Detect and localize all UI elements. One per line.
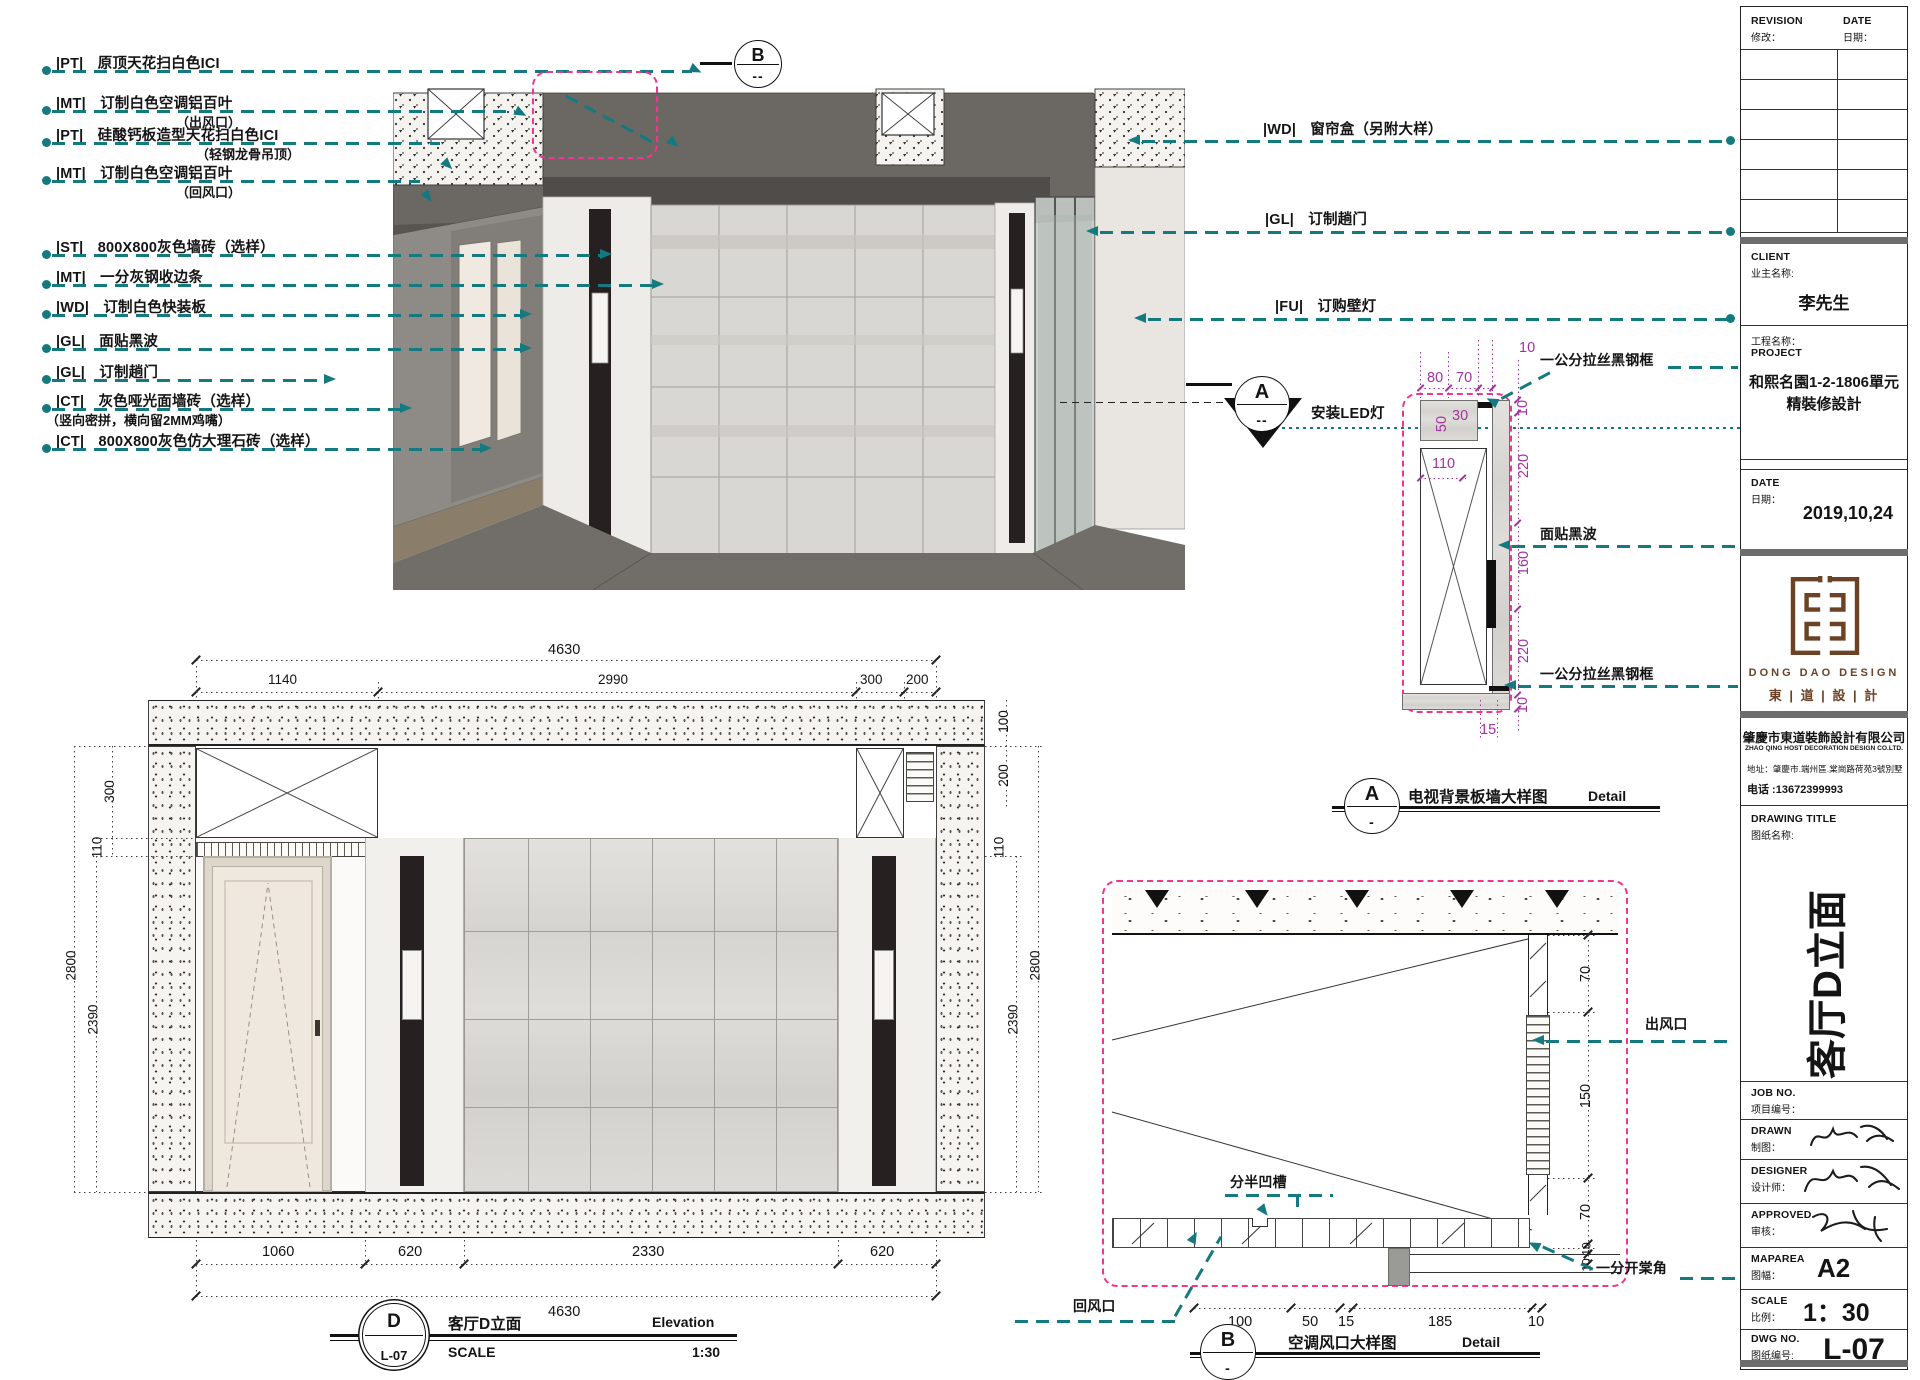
company-name: 肇慶市東道裝飾設計有限公司: [1741, 727, 1907, 746]
dim-label: 4630: [548, 1304, 580, 1320]
elevation-left-column: [148, 746, 196, 1192]
leader-dot: [42, 106, 51, 115]
elevation-type: Elevation: [652, 1314, 714, 1330]
detail-a-black-glass: [1487, 560, 1496, 628]
date-value: 2019,10,24: [1741, 503, 1893, 524]
leader-dot: [42, 310, 51, 319]
label-outlet: 出风口: [1645, 1014, 1688, 1034]
scale-value: 1：30: [1803, 1293, 1870, 1329]
dim-ext: [365, 1240, 366, 1264]
section-marker-a: A --: [1234, 376, 1290, 432]
dim-ext: [1497, 700, 1498, 738]
table-line: [1741, 1329, 1907, 1330]
dim-label: 300: [860, 672, 883, 687]
drawing-title-label-en: DRAWING TITLE: [1751, 813, 1836, 825]
hatch-marks: [1112, 1218, 1530, 1248]
dim-ext: [196, 1240, 197, 1296]
leader-arrow-icon: [1128, 135, 1140, 145]
leader-dot: [42, 444, 51, 453]
dim-ext: [1548, 1248, 1596, 1249]
table-line: [1741, 199, 1907, 200]
dim-label: 2800: [1028, 950, 1043, 980]
callout-fu-wall-lamp: |FU| 订购壁灯: [1275, 295, 1376, 316]
perspective-svg: [393, 85, 1185, 590]
job-label-en: JOB NO.: [1751, 1087, 1796, 1099]
leader-dot: [42, 176, 51, 185]
project-label-zh: 工程名称：: [1751, 333, 1801, 348]
dim-label: 30: [1452, 408, 1468, 424]
dim-ext: [196, 666, 197, 700]
drawing-title-vertical: 客厅D立面: [1795, 913, 1853, 1079]
dim-line: [1420, 388, 1494, 389]
dim-label: 80: [1427, 370, 1443, 386]
leader-line: [1296, 1196, 1299, 1212]
dim-line: [196, 660, 936, 661]
leader-arrow-icon: [1134, 313, 1146, 323]
company-address: 地址：肇慶市.端州區.棠崗路荷苑3號別墅: [1747, 763, 1903, 775]
logo-text-en: DONG DAO DESIGN: [1741, 667, 1907, 679]
elevation-scale-value: 1:30: [692, 1344, 720, 1360]
detail-a-wall-strip: [1492, 400, 1510, 708]
project-label-en: PROJECT: [1751, 347, 1802, 359]
tile-joint: [465, 1019, 837, 1020]
leader-line: [1512, 545, 1738, 548]
scale-label-en: SCALE: [1751, 1295, 1788, 1307]
dongdao-logo-icon: [1785, 573, 1865, 659]
table-line: [1741, 325, 1907, 326]
dim-label: 185: [1428, 1314, 1452, 1330]
dim-ext: [936, 1240, 937, 1296]
dim-ext: [904, 682, 905, 700]
dim-ext: [74, 746, 148, 747]
dim-label: 200: [906, 672, 929, 687]
table-line: [1741, 232, 1907, 233]
approved-signature: [1803, 1203, 1903, 1249]
revision-date-en: DATE: [1843, 15, 1872, 27]
elevation-ceiling-slab: [148, 700, 985, 746]
label-groove: 分半凹槽: [1230, 1172, 1287, 1192]
table-line: [1741, 1081, 1907, 1082]
detail-b-scope-box: [532, 71, 658, 159]
elevation-side-grille: [906, 752, 934, 802]
dim-label: 70: [1456, 370, 1472, 386]
table-line: [1741, 169, 1907, 170]
elevation-left-glass-strip: [400, 856, 424, 1186]
leader-line: [1546, 1040, 1734, 1043]
perspective-rendering: [393, 85, 1185, 590]
leader-dot: [1726, 227, 1735, 236]
elevation-curtain-box: [196, 748, 378, 838]
hatch-marks: [1528, 1175, 1548, 1220]
leader-line: [52, 110, 515, 113]
project-name-line2: 精裝修設計: [1741, 393, 1907, 414]
elevation-return-grille: [196, 842, 378, 857]
dim-line: [196, 1264, 936, 1265]
company-name-en: ZHAO QING HOST DECORATION DESIGN CO.LTD.: [1741, 745, 1907, 752]
divider-bar: [1740, 549, 1908, 556]
label-return-air: 回风口: [1073, 1296, 1116, 1316]
leader-line: [1225, 1194, 1333, 1197]
dim-label: 150: [1578, 1084, 1594, 1108]
label-black-glass: 面贴黑波: [1540, 524, 1597, 544]
leader-arrow-icon: [1086, 226, 1098, 236]
dim-label: 200: [996, 764, 1011, 787]
dim-label: 220: [1516, 639, 1532, 663]
maparea-value: A2: [1817, 1253, 1850, 1284]
divider-bar: [1740, 1360, 1908, 1367]
company-phone: 电话 :13672399993: [1747, 781, 1843, 797]
dim-label: 10: [1515, 400, 1531, 416]
leader-dot: [42, 66, 51, 75]
dim-line: [1194, 1308, 1542, 1309]
table-line: [1741, 109, 1907, 110]
dim-label: 2330: [632, 1244, 664, 1260]
dim-label: 10: [1515, 697, 1531, 713]
dim-label: 70: [1578, 1204, 1594, 1220]
detail-b-bubble: B -: [1200, 1324, 1256, 1380]
elevation-floor-slab: [148, 1192, 985, 1238]
leader-line: [1015, 1320, 1175, 1323]
table-line: [1741, 139, 1907, 140]
leader-line: [1148, 318, 1730, 321]
scale-label-zh: 比例：: [1751, 1309, 1781, 1324]
elevation-door-leaf: [212, 866, 323, 1192]
dim-ext: [936, 666, 937, 700]
callout-led-strip: 安装LED灯: [1311, 402, 1385, 423]
detail-a-title: 电视背景板墙大样图: [1408, 785, 1548, 807]
leader-dot: [42, 138, 51, 147]
drawing-title-label-zh: 图纸名称:: [1751, 827, 1794, 842]
dim-label: 110: [1432, 456, 1455, 472]
leader-line: [1501, 371, 1552, 400]
leader-arrow-icon: [324, 374, 336, 384]
dim-ext: [96, 856, 196, 857]
dim-label: 2390: [86, 1004, 101, 1034]
client-label-en: CLIENT: [1751, 251, 1790, 263]
leader-dot: [42, 250, 51, 259]
section-cut-line: [1186, 383, 1232, 386]
detail-a-bubble: A -: [1344, 778, 1400, 834]
section-cut-dashline: [1060, 402, 1230, 403]
dwg-label-en: DWG NO.: [1751, 1333, 1800, 1345]
section-cut-line: [700, 62, 732, 65]
table-line: [1741, 469, 1907, 470]
dim-ext: [96, 838, 196, 839]
dim-label: 620: [398, 1244, 422, 1260]
dim-ext: [464, 1240, 465, 1264]
dim-ext: [985, 1192, 1043, 1193]
client-name: 李先生: [1741, 289, 1907, 314]
dim-label: 15: [1338, 1314, 1354, 1330]
dim-label: 50: [1434, 416, 1450, 432]
tile-joint: [465, 931, 837, 932]
revision-label-en: REVISION: [1751, 15, 1803, 27]
dim-label: 2990: [598, 672, 628, 687]
dim-label: 620: [870, 1244, 894, 1260]
logo-text-zh: 東 | 道 | 設 | 計: [1741, 685, 1907, 704]
detail-b-groove-notch: [1252, 1218, 1268, 1227]
dim-label: 1140: [268, 672, 297, 687]
elevation-bubble: D L-07: [362, 1303, 426, 1367]
leader-dot: [42, 280, 51, 289]
leader-line: [52, 254, 600, 257]
leader-line: [1680, 1277, 1736, 1280]
leader-arrow-icon: [480, 443, 492, 453]
tile-joint: [590, 839, 591, 1191]
dim-label: 50: [1302, 1314, 1318, 1330]
elevation-right-column: [936, 746, 985, 1192]
dim-label: 220: [1516, 454, 1532, 478]
dim-label: 300: [102, 780, 117, 803]
dim-ext: [1548, 1012, 1596, 1013]
leader-line: [1100, 231, 1730, 234]
cad-sheet: { "colors":{"teal":"#147a80","pink":"#f0…: [0, 0, 1920, 1375]
hatch-marks: [1528, 935, 1548, 1015]
dim-ext: [1448, 352, 1449, 398]
dim-label: 15: [1480, 722, 1496, 738]
dim-ext: [74, 1192, 148, 1193]
leader-dot: [1726, 136, 1735, 145]
callout-subtext: （轻钢龙骨吊顶）: [196, 144, 300, 163]
elevation-door-handle: [315, 1020, 320, 1036]
section-marker-b: B --: [734, 40, 782, 88]
client-label-zh: 业主名称:: [1751, 265, 1794, 280]
callout-wd-curtain-box: |WD| 窗帘盒（另附大样）: [1263, 118, 1443, 139]
dim-line: [196, 1296, 936, 1297]
callout-subtext: （竖向密拼，横向留2MM鸡嘴）: [46, 410, 231, 429]
table-line: [1741, 1247, 1907, 1248]
dim-ext: [985, 746, 1043, 747]
drawn-signature: [1803, 1115, 1903, 1159]
detail-b-gray-block: [1388, 1248, 1410, 1286]
revision-table-divider: [1837, 49, 1838, 232]
leader-line: [1668, 366, 1738, 369]
maparea-label-en: MAPAREA: [1751, 1253, 1805, 1265]
elevation-right-xbox: [856, 748, 904, 838]
elevation-marble-wall: [464, 838, 838, 1192]
detail-b-title: 空调风口大样图: [1288, 1331, 1397, 1353]
detail-a-type: Detail: [1588, 788, 1626, 804]
dim-ext: [1478, 340, 1479, 398]
leader-line: [52, 284, 652, 287]
dim-label: 10: [1580, 1242, 1594, 1255]
divider-bar: [1740, 237, 1908, 244]
label-steel-frame-top: 一公分拉丝黑钢框: [1540, 350, 1654, 370]
leader-line: [52, 379, 324, 382]
dim-chain: [112, 838, 113, 856]
tile-joint: [714, 839, 715, 1191]
dim-label: 4630: [548, 642, 580, 658]
elevation-scale-label: SCALE: [448, 1344, 495, 1360]
tile-joint: [528, 839, 529, 1191]
leader-line: [1142, 140, 1730, 143]
leader-arrow-icon: [520, 343, 532, 353]
dim-label: 100: [996, 710, 1011, 733]
dim-label: 70: [1578, 966, 1594, 982]
revision-date-zh: 日期：: [1843, 29, 1873, 44]
elevation-right-lamp: [874, 950, 894, 1020]
leader-arrow-icon: [600, 249, 612, 259]
dim-ext: [856, 682, 857, 700]
detail-a-bottom-slab: [1402, 693, 1510, 710]
drawn-label-en: DRAWN: [1751, 1125, 1792, 1137]
revision-label-zh: 修改：: [1751, 29, 1781, 44]
leader-dot: [42, 344, 51, 353]
table-line: [1741, 805, 1907, 806]
leader-arrow-icon: [688, 63, 703, 77]
dim-ext: [1420, 352, 1421, 398]
elevation-right-glass-strip: [872, 856, 896, 1186]
leader-arrow-icon: [400, 403, 412, 413]
dim-ext: [985, 856, 1025, 857]
dim-label: 10: [1519, 340, 1535, 356]
label-corner: 一分开棠角: [1596, 1258, 1667, 1278]
table-line: [1741, 459, 1907, 460]
tile-joint: [776, 839, 777, 1191]
leader-arrow-icon: [652, 279, 664, 289]
label-steel-frame-bottom: 一公分拉丝黑钢框: [1540, 664, 1654, 684]
tile-joint: [465, 1107, 837, 1108]
dim-ext: [838, 1240, 839, 1264]
elevation-left-lamp: [402, 950, 422, 1020]
dim-ext: [1548, 1178, 1596, 1179]
table-line: [1741, 1289, 1907, 1290]
leader-line: [52, 348, 520, 351]
dim-line: [196, 692, 936, 693]
table-line: [1741, 49, 1907, 50]
drawn-label-zh: 制图：: [1751, 1139, 1781, 1154]
dim-label: 160: [1516, 551, 1532, 575]
table-line: [1741, 79, 1907, 80]
dim-ext: [378, 682, 379, 700]
designer-signature: [1799, 1157, 1905, 1203]
detail-b-edge-line: [1410, 1272, 1620, 1273]
title-block: REVISION 修改： DATE 日期： CLIENT 业主名称: 李先生 工…: [1740, 6, 1908, 1370]
job-label-zh: 项目编号：: [1751, 1101, 1801, 1116]
divider-bar: [1740, 711, 1908, 718]
leader-arrow-icon: [1504, 680, 1516, 690]
maparea-label-zh: 图幅：: [1751, 1267, 1781, 1282]
callout-subtext: （回风口）: [176, 182, 241, 201]
detail-a-cabinet-xbox: [1420, 448, 1487, 685]
leader-arrow-icon: [520, 309, 532, 319]
dim-label: 2390: [1006, 1004, 1021, 1034]
leader-arrow-icon: [1532, 1035, 1544, 1045]
dim-label: 2800: [64, 950, 79, 980]
dim-ext: [1492, 340, 1493, 398]
leader-dot: [42, 375, 51, 384]
leader-dot: [1726, 314, 1735, 323]
detail-b-type: Detail: [1462, 1334, 1500, 1350]
dim-label: 1060: [262, 1244, 294, 1260]
tile-joint: [652, 839, 653, 1191]
leader-line: [52, 314, 520, 317]
date-label-en: DATE: [1751, 477, 1780, 489]
dim-ext: [1548, 935, 1596, 936]
callout-gl-sliding-door-right: |GL| 订制趟门: [1265, 208, 1367, 229]
leader-line: [52, 448, 480, 451]
leader-arrow-icon: [1498, 540, 1510, 550]
leader-line: [1518, 685, 1738, 688]
project-name-line1: 和熙名園1-2-1806單元: [1741, 371, 1907, 392]
elevation-title: 客厅D立面: [448, 1312, 521, 1334]
designer-label-zh: 设计师：: [1751, 1179, 1791, 1194]
dim-label: 10: [1528, 1314, 1544, 1330]
approved-label-zh: 审核：: [1751, 1223, 1781, 1238]
